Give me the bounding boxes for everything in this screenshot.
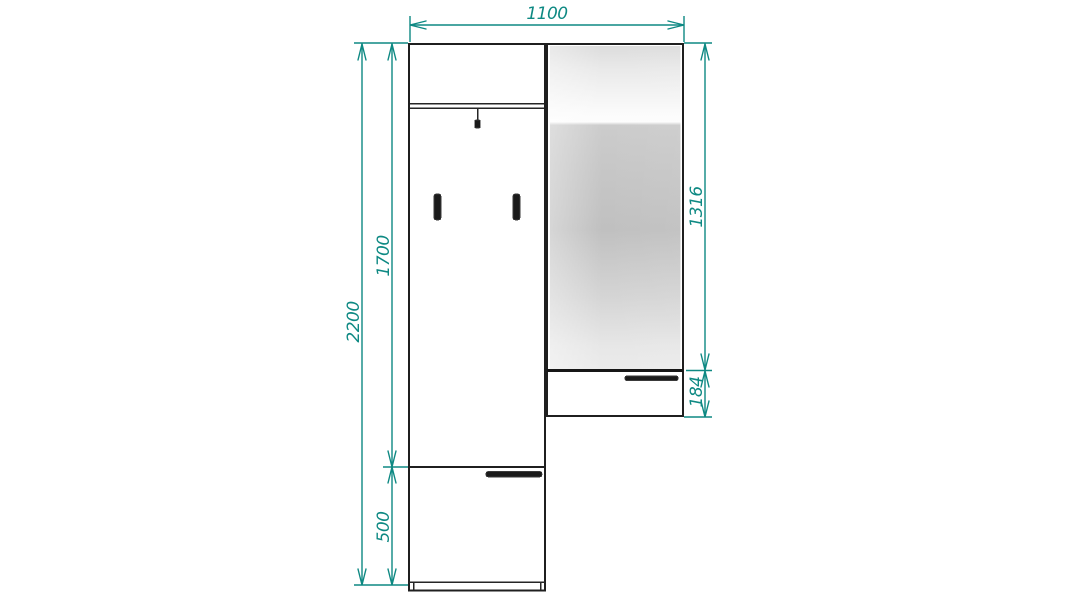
lower-cabinet-handle bbox=[486, 472, 542, 478]
drawer-handle bbox=[625, 376, 678, 381]
wardrobe-drawing bbox=[409, 44, 683, 591]
dim-label-upper-section-height: 1700 bbox=[374, 235, 394, 276]
dim-label-lower-cabinet-height: 500 bbox=[374, 512, 394, 543]
dim-label-mirror-panel-height: 1316 bbox=[687, 186, 707, 228]
dim-lower-cabinet-height: 500 bbox=[374, 467, 396, 585]
dim-label-drawer-height: 184 bbox=[687, 377, 707, 408]
dim-total-height: 2200 bbox=[344, 43, 366, 585]
coat-hook-right bbox=[513, 194, 520, 220]
dim-label-total-width: 1100 bbox=[526, 4, 567, 24]
dim-upper-section-height: 1700 bbox=[374, 43, 396, 467]
technical-drawing-canvas: 1100 2200 1700 500 1316 184 bbox=[0, 0, 1067, 600]
dim-total-width: 1100 bbox=[410, 4, 684, 42]
hanger-bracket bbox=[475, 109, 480, 128]
coat-hook-left bbox=[434, 194, 441, 220]
dim-mirror-panel-height: 1316 bbox=[687, 43, 709, 370]
mirror-sheen-overlay bbox=[550, 46, 681, 369]
dim-drawer-height: 184 bbox=[687, 370, 709, 417]
dim-label-total-height: 2200 bbox=[344, 301, 364, 342]
plinth bbox=[409, 582, 545, 590]
